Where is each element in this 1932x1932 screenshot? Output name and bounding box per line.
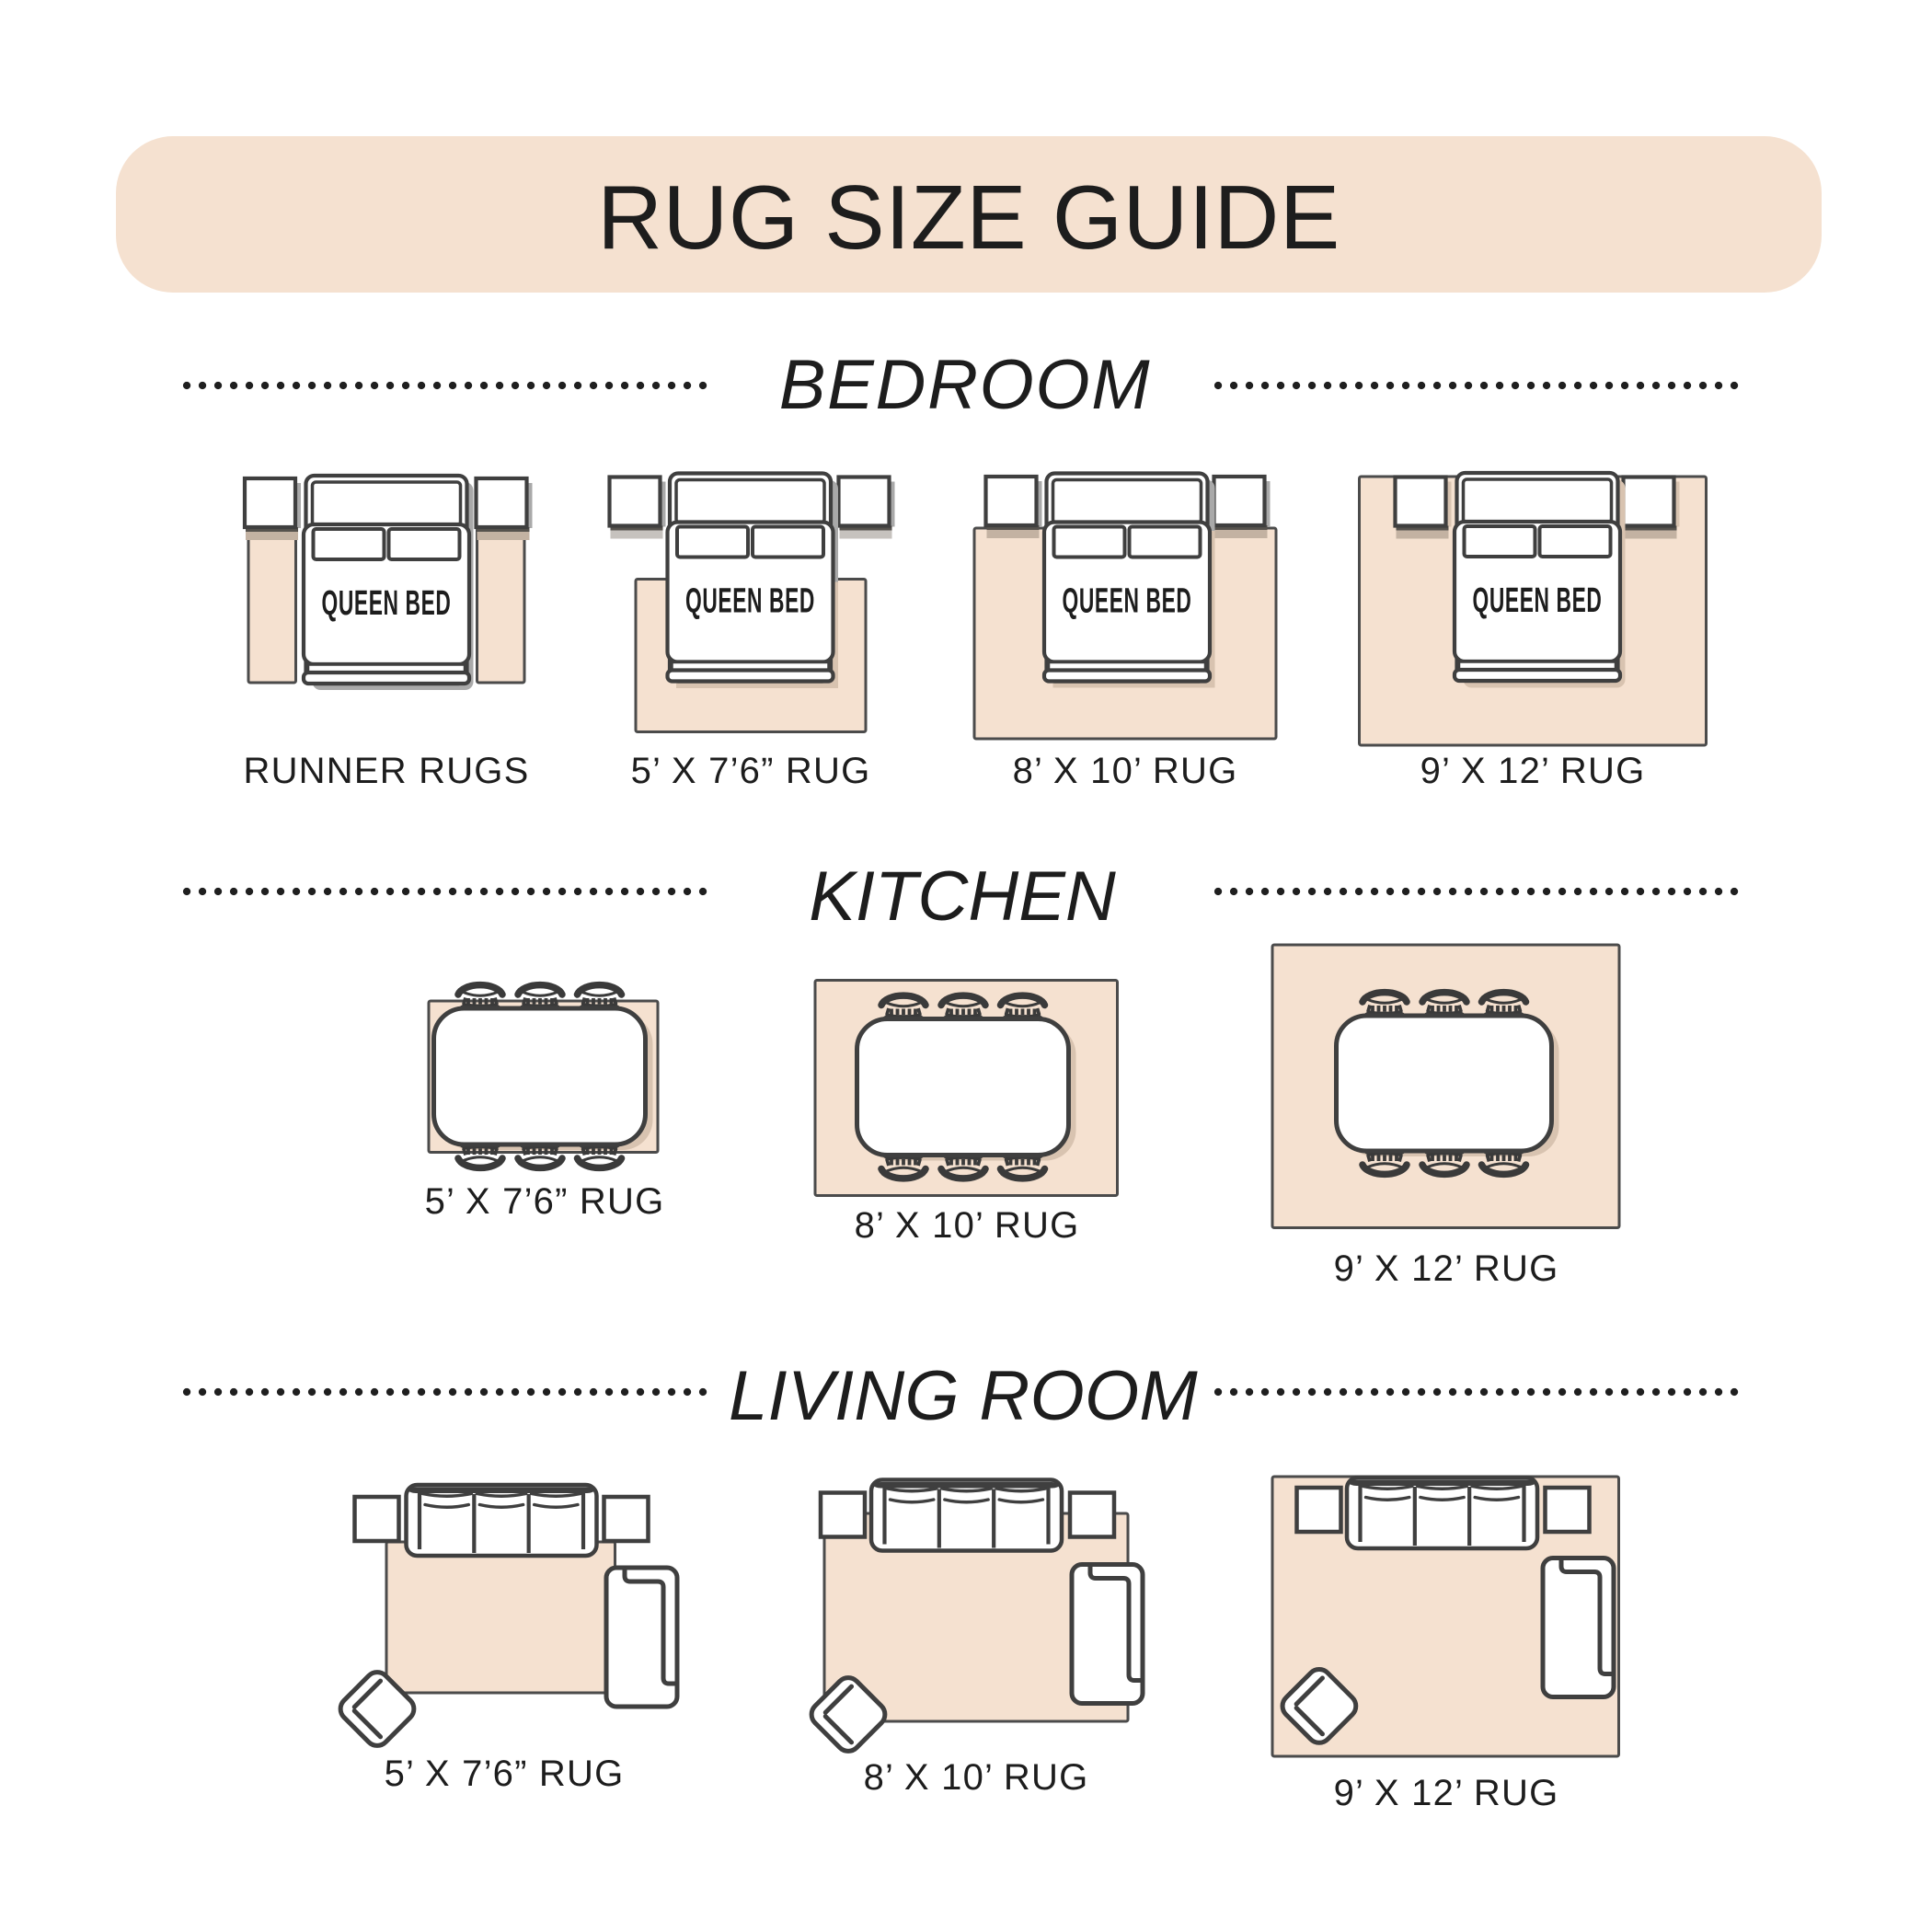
svg-text:9’ X 12’ RUG: 9’ X 12’ RUG — [1334, 1248, 1559, 1289]
svg-text:5’ X 7’6” RUG: 5’ X 7’6” RUG — [385, 1754, 625, 1794]
svg-text:8’ X 10’ RUG: 8’ X 10’ RUG — [1013, 751, 1238, 791]
svg-text:QUEEN BED: QUEEN BED — [322, 583, 452, 622]
svg-text:8’ X 10’ RUG: 8’ X 10’ RUG — [864, 1757, 1089, 1798]
svg-text:9’ X 12’ RUG: 9’ X 12’ RUG — [1420, 751, 1646, 791]
svg-text:QUEEN BED: QUEEN BED — [1063, 581, 1192, 620]
svg-text:LIVING ROOM: LIVING ROOM — [729, 1357, 1198, 1435]
svg-text:QUEEN BED: QUEEN BED — [1473, 581, 1603, 619]
svg-text:KITCHEN: KITCHEN — [809, 857, 1116, 936]
svg-text:5’ X 7’6” RUG: 5’ X 7’6” RUG — [425, 1181, 665, 1222]
svg-text:RUG SIZE GUIDE: RUG SIZE GUIDE — [597, 167, 1340, 268]
svg-text:QUEEN BED: QUEEN BED — [685, 581, 815, 620]
svg-text:8’ X 10’ RUG: 8’ X 10’ RUG — [855, 1205, 1080, 1246]
svg-text:BEDROOM: BEDROOM — [779, 346, 1152, 424]
svg-text:5’ X 7’6” RUG: 5’ X 7’6” RUG — [631, 751, 871, 791]
svg-text:RUNNER RUGS: RUNNER RUGS — [244, 751, 530, 791]
svg-text:9’ X 12’ RUG: 9’ X 12’ RUG — [1334, 1773, 1559, 1813]
